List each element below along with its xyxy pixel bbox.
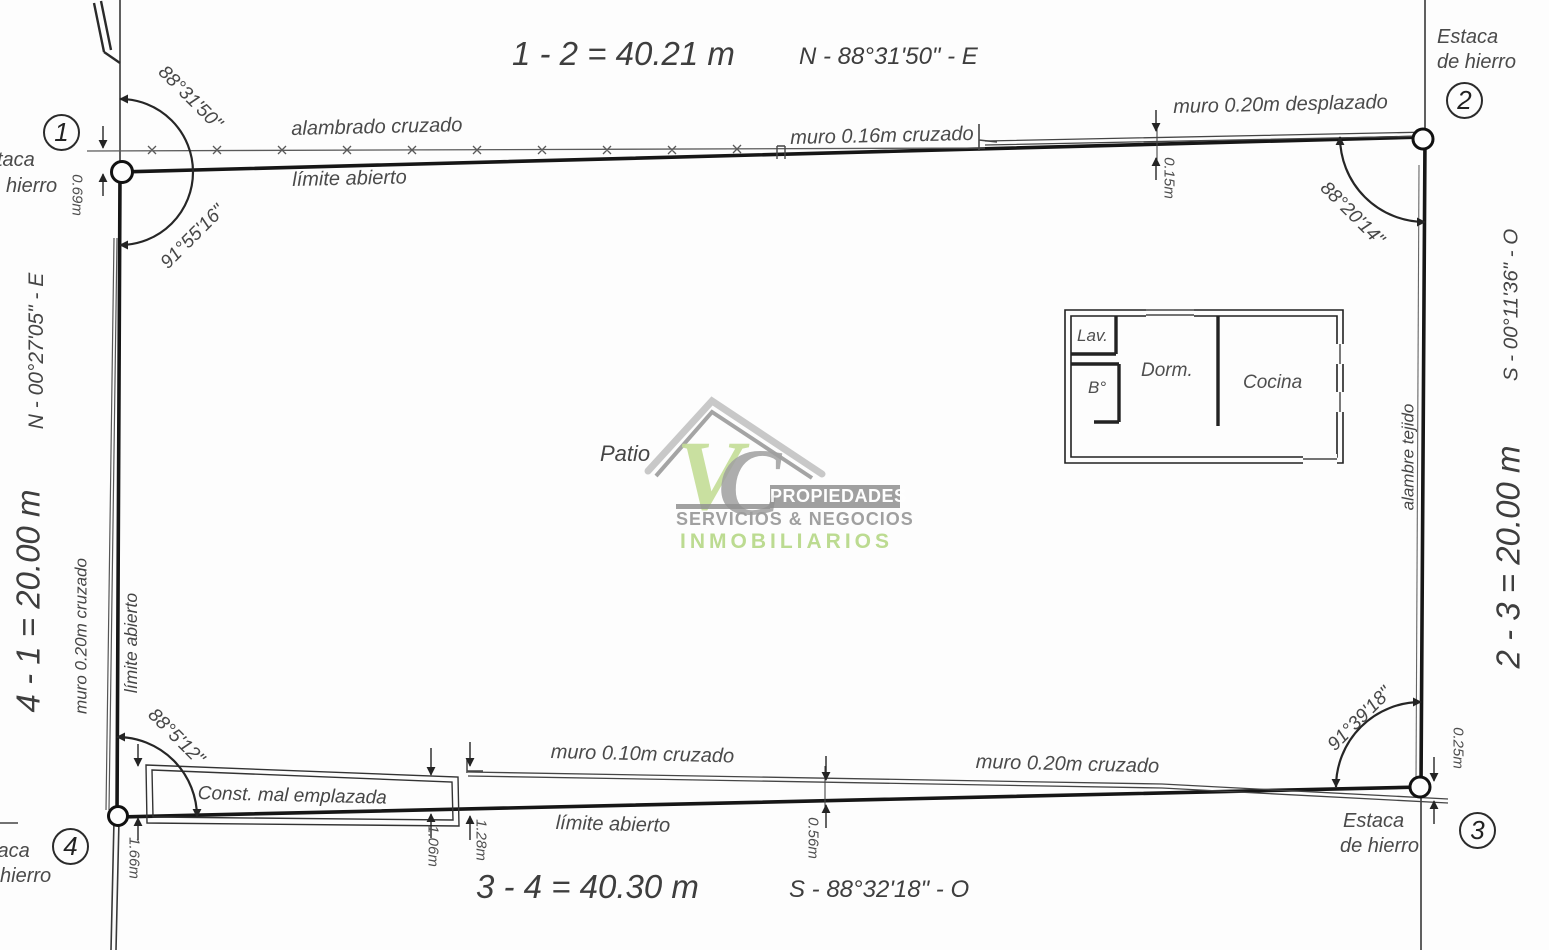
corner-1-stake-line1: taca	[0, 149, 35, 171]
fence-top-label: alambrado cruzado	[291, 114, 463, 140]
corner-2-stake-line1: Estaca	[1437, 26, 1498, 48]
room-bedroom-label: Dorm.	[1141, 360, 1193, 381]
offset-025: 0.25m	[1449, 727, 1466, 769]
open-limit-bottom-label: límite abierto	[555, 812, 670, 837]
offset-166: 1.66m	[125, 837, 142, 879]
corner-1-stake-line2: hierro	[6, 175, 57, 197]
corner-3-stake-line2: de hierro	[1340, 835, 1419, 857]
patio-label: Patio	[600, 442, 650, 467]
room-laundry-label: Lav.	[1077, 326, 1108, 345]
left-dimension: 4 - 1 = 20.00 m	[11, 490, 48, 713]
corner-1-number: 1	[54, 117, 68, 148]
offset-128: 1.28m	[472, 819, 489, 861]
wall-left	[106, 238, 117, 810]
wall-020-bottom-label: muro 0.20m cruzado	[975, 751, 1159, 778]
open-limit-left-label: límite abierto	[122, 593, 142, 693]
survey-drawing	[0, 0, 1549, 950]
room-kitchen-label: Cocina	[1243, 372, 1302, 393]
site-plan: V C PROPIEDADES SERVICIOS & NEGOCIOS INM…	[0, 0, 1549, 950]
corner-3-number: 3	[1470, 815, 1484, 846]
offset-069: 0.69m	[68, 174, 85, 216]
boundary-polygon	[117, 137, 1425, 817]
corner-1-marker: 1	[43, 114, 80, 151]
corner-2-marker: 2	[1446, 82, 1483, 119]
open-limit-top-label: límite abierto	[292, 166, 407, 191]
fence-right-label: alambre tejido	[1398, 404, 1417, 511]
corner-4-marker: 4	[52, 828, 89, 865]
offset-056: 0.56m	[804, 817, 821, 859]
right-dimension: 2 - 3 = 20.00 m	[1491, 446, 1528, 669]
top-left-wall-stub	[94, 1, 120, 63]
watermark-roof-icon	[648, 401, 822, 478]
top-bearing: N - 88°31'50" - E	[799, 44, 978, 71]
dimension-arrows	[103, 110, 1434, 840]
corner-3-marker: 3	[1459, 812, 1496, 849]
angle-arcs	[117, 99, 1425, 817]
corner-stake-dots	[109, 129, 1434, 826]
right-bearing: S - 00°11'36" - O	[1501, 229, 1524, 381]
wall-016-label: muro 0.16m cruzado	[790, 123, 974, 150]
bottom-bearing: S - 88°32'18" - O	[789, 877, 969, 904]
left-bearing: N - 00°27'05" - E	[25, 273, 49, 429]
wall-010-label: muro 0.10m cruzado	[550, 741, 734, 768]
corner-2-stake-line2: de hierro	[1437, 51, 1516, 73]
offset-015: 0.15m	[1160, 157, 1177, 199]
bottom-dimension: 3 - 4 = 40.30 m	[476, 869, 699, 906]
corner-3-stake-line1: Estaca	[1343, 810, 1404, 832]
top-dimension: 1 - 2 = 40.21 m	[512, 36, 735, 73]
wall-020-left-label: muro 0.20m cruzado	[71, 558, 90, 714]
corner-4-stake-line1: taca	[0, 840, 30, 862]
corner-2-number: 2	[1457, 85, 1471, 116]
room-bathroom-label: B°	[1088, 378, 1106, 397]
offset-106: 1.06m	[424, 825, 441, 867]
corner-4-number: 4	[63, 831, 77, 862]
corner-4-stake-line2: hierro	[0, 865, 51, 887]
